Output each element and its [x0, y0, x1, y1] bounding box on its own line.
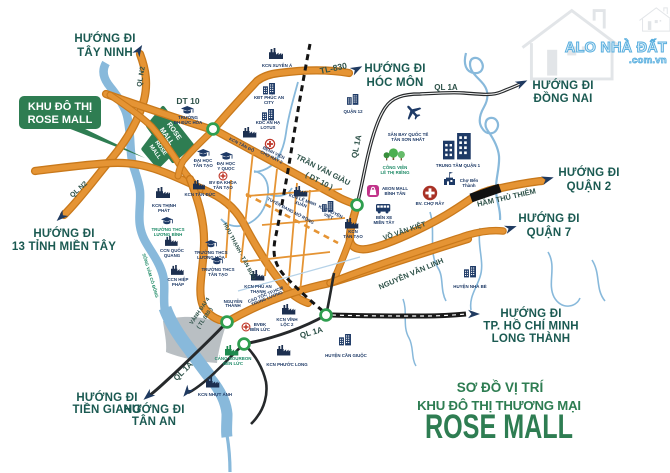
svg-text:HUYỆN CẦN GIUỘC: HUYỆN CẦN GIUỘC [325, 353, 368, 358]
svg-text:TRƯỜNG THCSLƯƠNG HÒA: TRƯỜNG THCSLƯƠNG HÒA [195, 250, 228, 260]
svg-text:KCN PHƯỚC LONG: KCN PHƯỚC LONG [266, 362, 308, 367]
svg-text:KCN VĨNHLỘC 2: KCN VĨNHLỘC 2 [276, 317, 297, 327]
svg-text:ROSE MALL: ROSE MALL [28, 114, 93, 126]
svg-text:HƯỚNG ĐITÂY NINH: HƯỚNG ĐITÂY NINH [74, 32, 135, 59]
svg-text:KĐT PHÚC ANCITY: KĐT PHÚC ANCITY [254, 95, 284, 105]
svg-text:BVĐKBẾN LỨC: BVĐKBẾN LỨC [250, 322, 271, 332]
svg-text:ROSE MALL: ROSE MALL [425, 408, 573, 446]
svg-text:TRƯỜNG THCSLƯƠNG BÌNH: TRƯỜNG THCSLƯƠNG BÌNH [152, 227, 185, 237]
svg-text:CCN HIỆPPHÁP: CCN HIỆPPHÁP [168, 277, 189, 287]
svg-text:HƯỚNG ĐIQUẬN 2: HƯỚNG ĐIQUẬN 2 [558, 166, 619, 193]
svg-text:QL 1A: QL 1A [350, 134, 364, 159]
svg-text:AEON MALLBÌNH TÂN: AEON MALLBÌNH TÂN [382, 186, 408, 196]
svg-text:DT 10: DT 10 [176, 96, 199, 106]
svg-text:CÔNG VIÊNLÊ THỊ RIÊNG: CÔNG VIÊNLÊ THỊ RIÊNG [380, 165, 410, 175]
svg-text:CCN QUỐCQUANG: CCN QUỐCQUANG [160, 248, 185, 258]
svg-text:SƠ ĐỒ VỊ TRÍ: SƠ ĐỒ VỊ TRÍ [457, 380, 545, 395]
svg-text:BV ĐA KHOATÂN TẠO: BV ĐA KHOATÂN TẠO [209, 180, 237, 190]
svg-text:.com.vn: .com.vn [629, 55, 667, 66]
svg-text:HƯỚNG ĐITÂN AN: HƯỚNG ĐITÂN AN [123, 403, 184, 428]
svg-text:KHU ĐÔ THỊ: KHU ĐÔ THỊ [28, 100, 92, 113]
svg-text:QL 1A: QL 1A [434, 83, 458, 92]
svg-text:SÂN BAY QUỐC TẾTÂN SƠN NHẤT: SÂN BAY QUỐC TẾTÂN SƠN NHẤT [388, 132, 429, 142]
svg-text:KCN THỊNHPHÁT: KCN THỊNHPHÁT [152, 203, 176, 213]
svg-text:KCN TÂN ĐÔ: KCN TÂN ĐÔ [228, 136, 255, 153]
svg-text:ĐẠI HỌCTÂN TẠO: ĐẠI HỌCTÂN TẠO [193, 158, 213, 168]
svg-text:HƯỚNG ĐIHÓC MÔN: HƯỚNG ĐIHÓC MÔN [364, 62, 425, 89]
svg-text:HƯỚNG ĐIĐỒNG NAI: HƯỚNG ĐIĐỒNG NAI [532, 79, 593, 105]
svg-text:BV. CHỢ RẪY: BV. CHỢ RẪY [416, 201, 445, 206]
svg-text:QUẬN 12: QUẬN 12 [343, 109, 363, 114]
svg-text:Chợ BếnThành: Chợ BếnThành [460, 178, 479, 188]
svg-text:HUYỆN NHÀ BÈ: HUYỆN NHÀ BÈ [453, 284, 486, 289]
svg-text:CẢNG BOURBONBẾN LỨC: CẢNG BOURBONBẾN LỨC [215, 356, 252, 366]
svg-text:HƯỚNG ĐIQUẬN 7: HƯỚNG ĐIQUẬN 7 [518, 212, 579, 239]
svg-text:KCN XUYÊN Á: KCN XUYÊN Á [262, 63, 293, 68]
svg-text:KCNTÂN TẠO: KCNTÂN TẠO [343, 229, 363, 239]
svg-text:TRƯỜNGĐH ĐỨC HÒA: TRƯỜNGĐH ĐỨC HÒA [174, 115, 203, 125]
svg-text:NGUYỄNTHÀNH: NGUYỄNTHÀNH [224, 299, 243, 308]
svg-text:KDC AN HẠLOTUS: KDC AN HẠLOTUS [256, 120, 281, 130]
svg-text:TRƯỜNG THCSTÂN TẠO: TRƯỜNG THCSTÂN TẠO [202, 267, 235, 277]
svg-text:HƯỚNG ĐITP. HỒ CHÍ MINHLONG TH: HƯỚNG ĐITP. HỒ CHÍ MINHLONG THÀNH [483, 307, 578, 345]
svg-text:BẾN XEMIỀN TÂY: BẾN XEMIỀN TÂY [374, 215, 395, 225]
svg-text:ALO NHÀ ĐẤT: ALO NHÀ ĐẤT [565, 39, 667, 56]
svg-text:KCN NHỰT ÁNH: KCN NHỰT ÁNH [198, 392, 232, 397]
svg-text:TRUNG TÂM QUẬN 1: TRUNG TÂM QUẬN 1 [436, 163, 481, 168]
svg-text:ĐẠI HỌCY QUỌC: ĐẠI HỌCY QUỌC [217, 161, 236, 171]
svg-text:KCN TÂN ĐỨC: KCN TÂN ĐỨC [185, 192, 217, 197]
svg-text:HƯỚNG ĐI13 TỈNH MIỀN TÂY: HƯỚNG ĐI13 TỈNH MIỀN TÂY [12, 227, 116, 253]
